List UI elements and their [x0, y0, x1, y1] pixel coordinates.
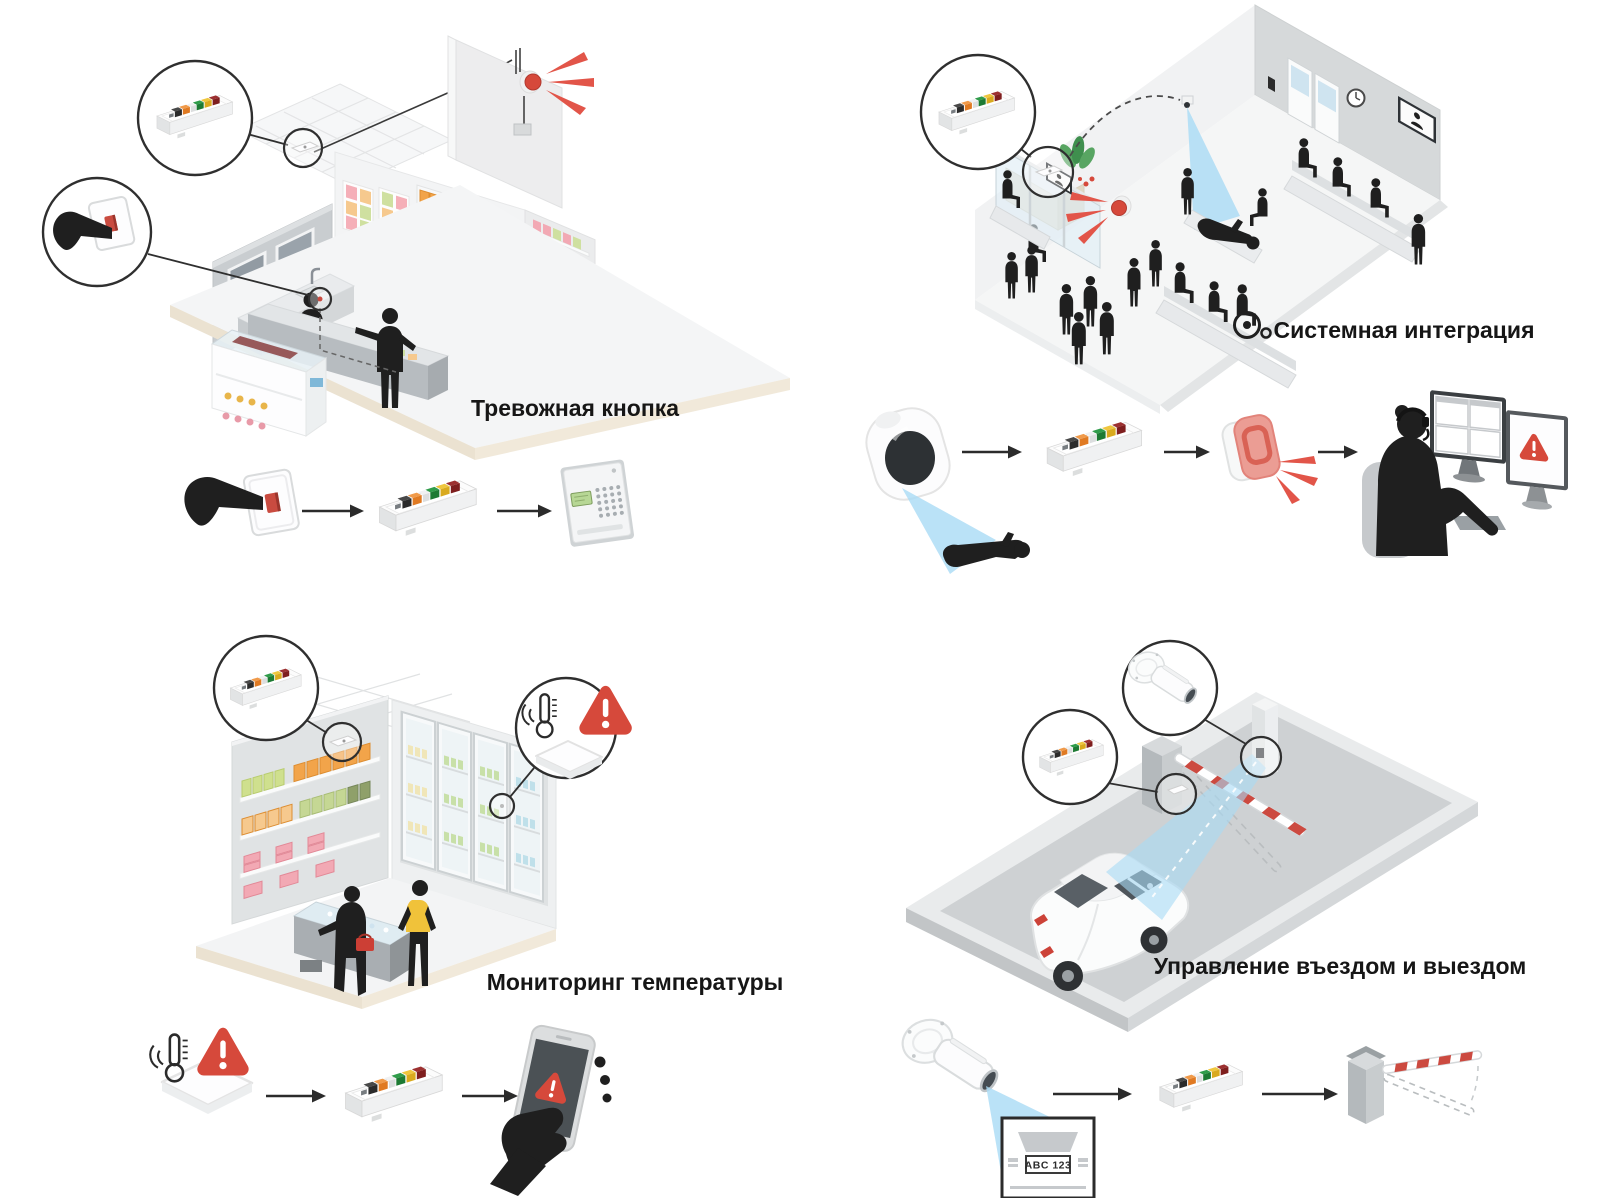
barrier-arm-ghost — [1383, 1073, 1475, 1115]
scene-title-entry-exit: Управление въездом и выездом — [1154, 953, 1527, 979]
quadrant-entry-exit: Управление въездом и выездом ABC 123 — [799, 599, 1598, 1198]
shopping-basket — [356, 938, 374, 951]
bullet-camera-icon — [897, 1014, 1003, 1096]
flow-arrow — [1053, 1088, 1132, 1101]
monitor-alert-view — [1506, 410, 1568, 513]
monitor-grid-view — [1430, 390, 1506, 486]
license-plate-camera-icon: ABC 123 — [897, 1014, 1094, 1198]
quadrant-temperature-monitoring: Мониторинг температуры — [0, 599, 799, 1198]
license-plate-view: ABC 123 — [1002, 1118, 1094, 1198]
flow-arrow — [302, 505, 364, 518]
flow-arrow — [497, 505, 552, 518]
smartphone-alert-icon — [490, 1024, 612, 1196]
scene-temperature-monitoring — [196, 636, 632, 1009]
scene-title-panic-button: Тревожная кнопка — [471, 395, 679, 421]
warning-triangle-icon — [197, 1028, 248, 1076]
scene-title-temperature-monitoring: Мониторинг температуры — [487, 969, 784, 995]
alarm-keypad-icon — [560, 459, 635, 547]
flow-arrow — [1164, 446, 1210, 459]
flow-panic-button — [184, 459, 634, 547]
flow-arrow — [266, 1090, 326, 1103]
wall-clock-icon — [1348, 90, 1365, 107]
barrier-arm — [1382, 1050, 1482, 1074]
use-case-illustration: Тревожная кнопка — [0, 0, 1598, 1198]
dome-camera-icon — [859, 401, 1030, 574]
exterior-wall — [448, 36, 562, 208]
io-relay-device-icon — [379, 481, 476, 536]
motion-dashes — [1470, 1066, 1478, 1104]
quadrant-panic-button: Тревожная кнопка — [0, 0, 799, 599]
flow-arrow — [1318, 446, 1358, 459]
io-relay-device-icon — [1160, 1064, 1243, 1111]
panic-button-press-icon — [184, 469, 299, 536]
strobe-siren-icon — [1220, 413, 1318, 504]
license-plate-text: ABC 123 — [1025, 1160, 1072, 1172]
freezer-door — [402, 712, 435, 870]
barrier-gate-icon — [1346, 1046, 1482, 1124]
flow-entry-exit: ABC 123 — [897, 1014, 1482, 1198]
flow-arrow — [462, 1090, 518, 1103]
scene-system-integration — [921, 5, 1448, 414]
temperature-sensor-icon — [150, 1028, 252, 1114]
scene-title-system-integration: Системная интеграция — [1273, 317, 1534, 343]
quadrant-system-integration: Системная интеграция — [799, 0, 1598, 599]
freezer-door — [438, 723, 471, 881]
flow-temperature-monitoring — [150, 1024, 611, 1196]
io-relay-device-icon — [1047, 422, 1141, 476]
flow-arrow — [962, 446, 1022, 459]
io-relay-device-icon — [345, 1067, 442, 1122]
thermometer-icon — [150, 1035, 187, 1082]
flow-arrow — [1262, 1088, 1338, 1101]
flow-system-integration — [859, 390, 1568, 574]
operator-workstation-icon — [1362, 390, 1568, 558]
